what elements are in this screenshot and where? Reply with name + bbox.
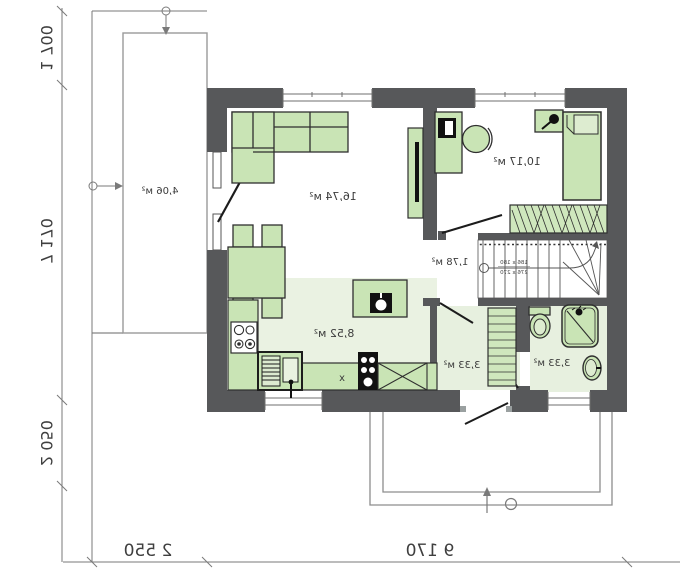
entrance-door-leaf [465, 403, 508, 424]
floor-plan-canvas: 186 x 180 276 x 270 [0, 0, 700, 575]
sofa [232, 112, 348, 183]
tv-stand [408, 128, 423, 218]
dim-left-mid: 7 170 [37, 218, 56, 264]
living-room-label: 16,74 м² [309, 190, 357, 203]
shower-head-icon [576, 309, 583, 316]
pillow [574, 115, 598, 134]
dim-left-top: 1 700 [37, 25, 56, 71]
dim-bottom-terrace: 2 550 [124, 541, 173, 561]
toilet [529, 307, 550, 338]
nightstand [535, 110, 563, 132]
entry-arrow-porch [483, 487, 517, 513]
bedroom-label: 10,17 м² [493, 155, 541, 168]
entry-wardrobe [488, 308, 516, 386]
entry-arrow-terrace-side [89, 182, 123, 190]
kitchen-island [353, 280, 407, 317]
shower [562, 305, 598, 347]
kitchen-window [265, 392, 322, 410]
bathroom-window [548, 392, 590, 410]
stairs-note-bottom: 276 x 270 [500, 270, 528, 276]
desk-chair [463, 126, 490, 153]
entrance-jamb-right [460, 406, 466, 412]
tv-icon [415, 142, 419, 202]
desk [435, 112, 462, 173]
hall-label: 1,78 м² [432, 257, 469, 268]
entrance-jamb-left [506, 406, 512, 412]
dim-left-bottom: 2 050 [37, 420, 56, 466]
bedroom-window [475, 89, 565, 107]
bath-sink [583, 356, 601, 380]
cooktop-icon [231, 322, 257, 353]
bedroom-wardrobe [510, 205, 607, 233]
living-window [283, 89, 372, 107]
kitchen-label: 8,52 м² [314, 327, 355, 340]
dim-bottom-main: 9 170 [406, 541, 455, 561]
computer-icon [438, 118, 456, 138]
bedroom-door-leaf [442, 215, 502, 233]
bed [563, 112, 601, 200]
terrace-label: 4,06 м² [142, 186, 179, 197]
cabinet-mark: x [339, 373, 345, 384]
terrace-outline [92, 33, 207, 333]
stairs-note-top: 186 x 180 [500, 260, 528, 266]
entry-label: 3,33 м² [444, 360, 481, 371]
bathroom-label: 3,33 м² [534, 358, 571, 369]
stove-icon [358, 352, 378, 390]
floor-plan-svg: 186 x 180 276 x 270 [0, 0, 700, 575]
stairs: 186 x 180 276 x 270 [478, 240, 607, 298]
mirrored-plan: 186 x 180 276 x 270 [37, 6, 680, 567]
porch-outline [370, 412, 612, 505]
